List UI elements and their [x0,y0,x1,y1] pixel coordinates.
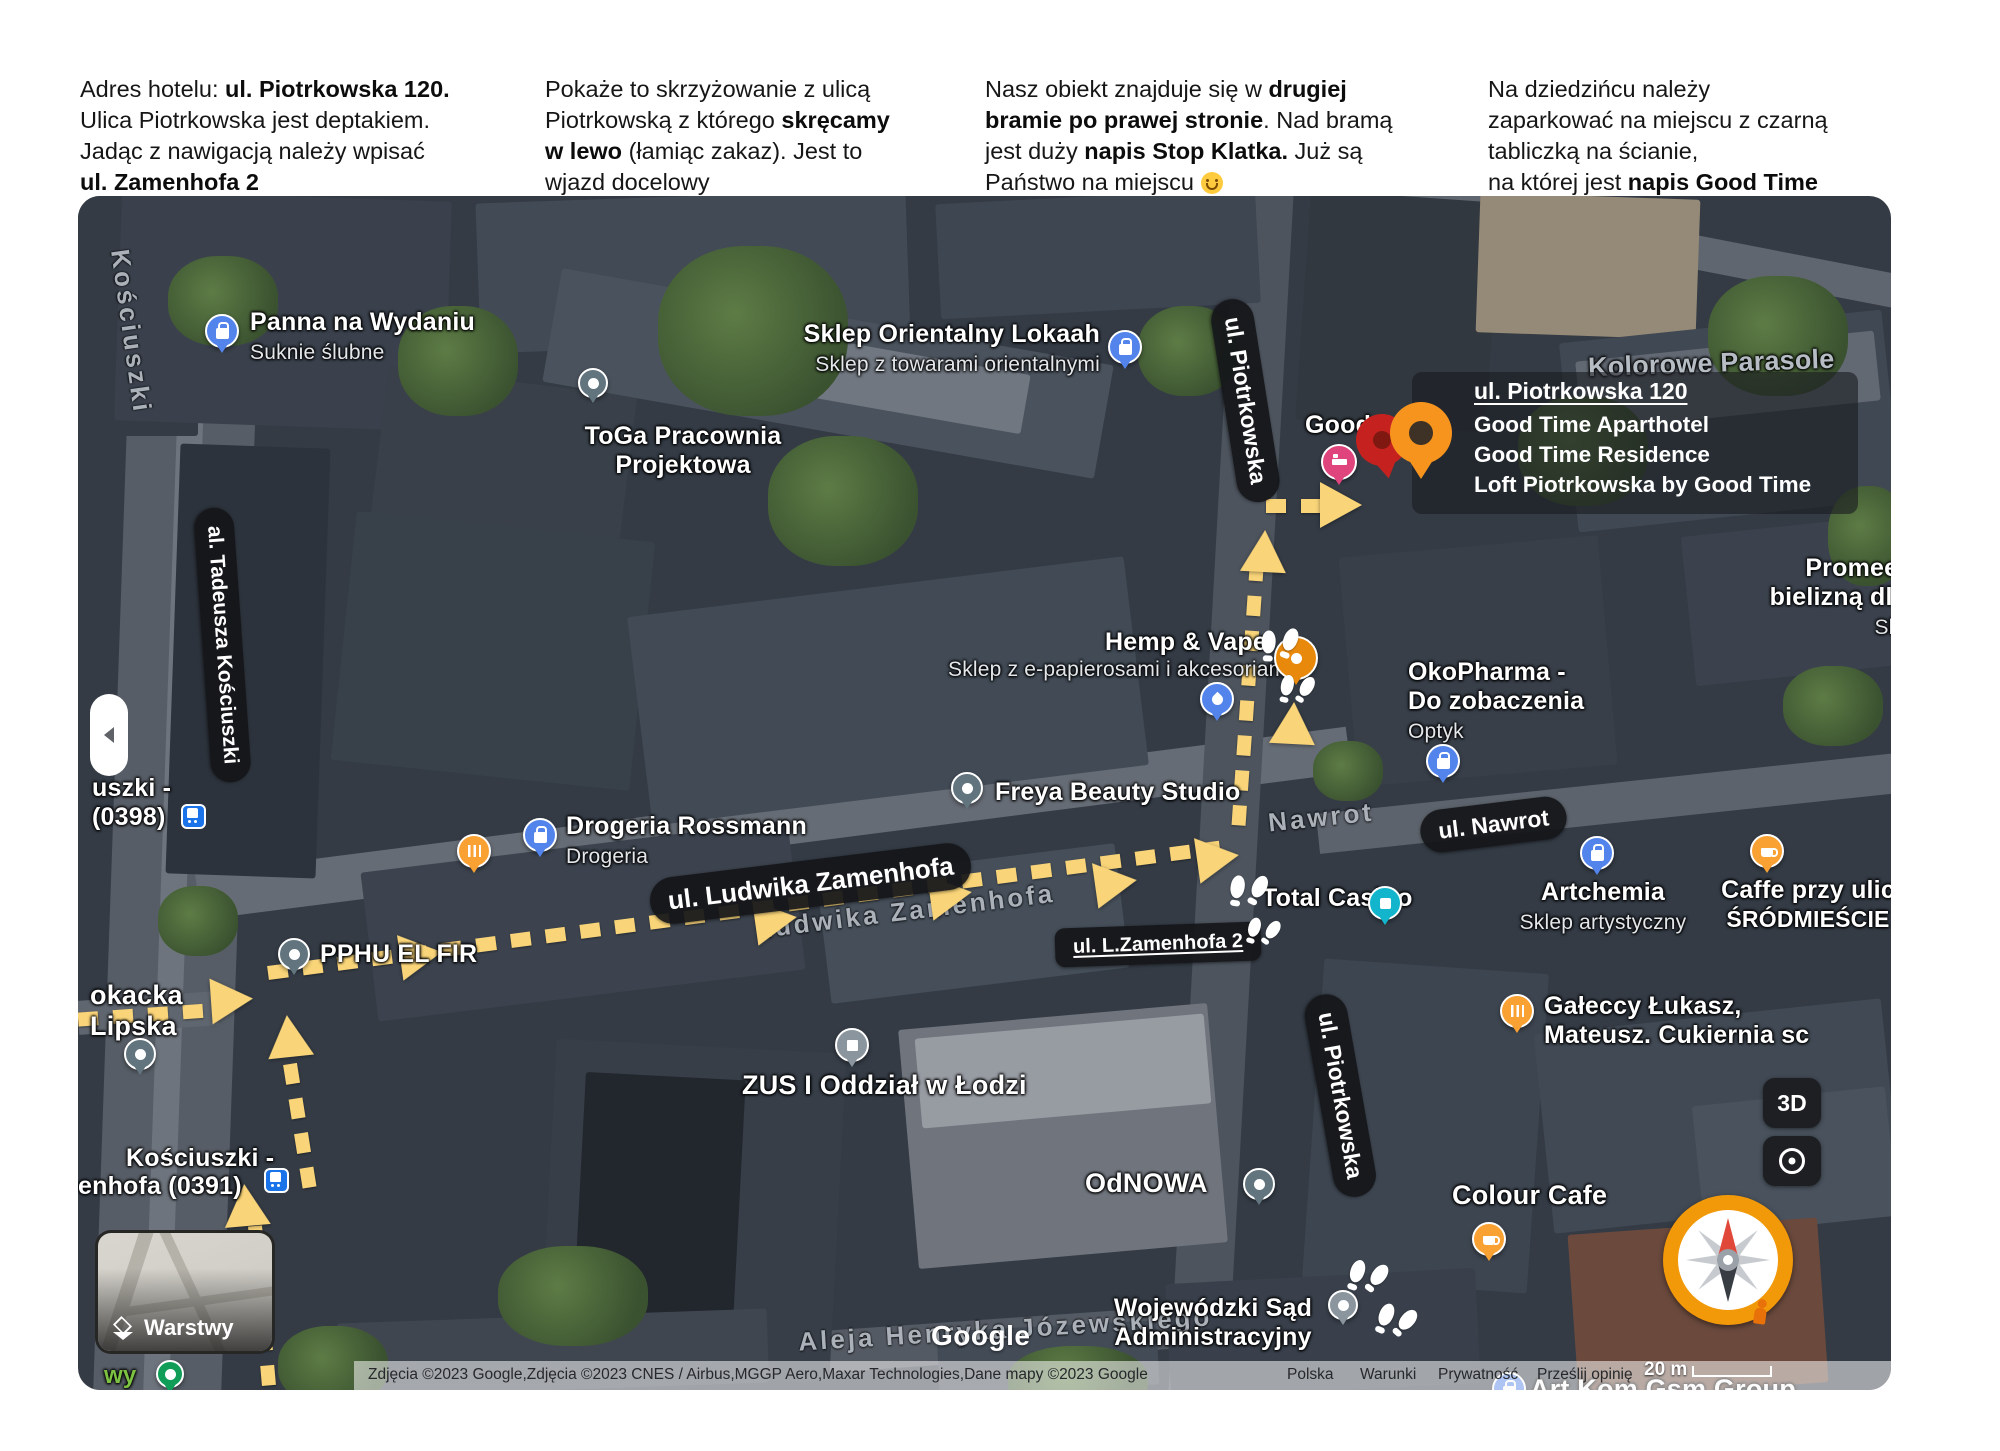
popup-line: Good Time Aparthotel [1474,410,1858,440]
poi-galeccy[interactable]: Gałeccy Łukasz,Mateusz. Cukiernia sc [1544,992,1809,1050]
institution-pin-zus[interactable] [835,1028,869,1062]
page: { "instructions": [ {"segments":[{"t":"A… [0,0,2000,1451]
bag-icon [534,832,547,843]
destination-pin-orange[interactable] [1390,402,1452,464]
dot-icon [135,1049,146,1060]
dot-icon [1254,1179,1265,1190]
fork-icon [468,845,481,857]
shopping-pin-orientalny[interactable] [1108,330,1142,364]
poi-okacka-lipska[interactable]: okackaLipska [90,980,183,1042]
place-pin-pphu[interactable] [278,938,310,970]
my-location-button[interactable] [1763,1136,1821,1186]
poi-promees[interactable]: Promees -bielizną dla kSklep [1708,554,1891,641]
tram-stop-icon [181,804,206,829]
park-pin[interactable] [156,1360,184,1388]
instruction-1: Adres hotelu: ul. Piotrkowska 120.Ulica … [80,74,525,198]
poi-toga[interactable]: ToGa PracowniaProjektowa [568,422,798,480]
fork-icon [1511,1005,1524,1017]
route-arrow-right [209,976,254,1025]
building-icon [847,1040,858,1051]
bed-icon [1332,459,1347,465]
street-pill-zamenhofa-2: ul. L.Zamenhofa 2 [1054,921,1261,967]
cafe-pin-colour[interactable] [1472,1222,1506,1256]
poi-freya[interactable]: Freya Beauty Studio [995,778,1241,807]
dice-icon [1380,898,1391,909]
scale-bar [1692,1366,1772,1377]
park-label-fragment: wy [104,1362,136,1390]
poi-zus[interactable]: ZUS I Oddział w Łodzi [742,1070,1022,1101]
route-dash [1266,499,1324,513]
dot-icon [289,949,300,960]
popup-title: ul. Piotrkowska 120 [1474,378,1858,405]
compass[interactable] [1663,1195,1793,1325]
coffee-cup-icon [1761,848,1773,857]
dot-icon [165,1369,176,1380]
instruction-3: Nasz obiekt znajduje się w drugiejbramie… [985,74,1465,198]
poi-sklep-orientalny[interactable]: Sklep Orientalny LokaahSklep z towarami … [700,320,1100,378]
vape-pin-hemp[interactable] [1200,682,1234,716]
poi-odnowa[interactable]: OdNOWA [1085,1168,1208,1199]
place-pin-okacka[interactable] [124,1038,156,1070]
popup-line: Loft Piotrkowska by Good Time [1474,470,1858,500]
route-arrow-right [1092,857,1140,908]
poi-pphu[interactable]: PPHU EL FIR [320,940,477,969]
restaurant-pin-route[interactable] [457,834,491,868]
shopping-pin-panna[interactable] [205,314,239,348]
dot-icon [588,378,599,389]
restaurant-pin-galeccy[interactable] [1500,994,1534,1028]
smiley-emoji [1201,172,1223,194]
layers-label: Warstwy [144,1315,234,1341]
poi-hemp-vape[interactable]: Hemp & Vape [1105,628,1267,657]
poi-caffe-srodmiescie[interactable]: Caffe przy ulicŚRÓDMIEŚCIE [1688,876,1891,934]
link-polska[interactable]: Polska [1287,1366,1334,1384]
dot-icon [962,783,973,794]
scale-label: 20 m [1644,1359,1687,1381]
3d-button[interactable]: 3D [1763,1078,1821,1128]
link-przeslij-opinie[interactable]: Prześlij opinię [1537,1366,1633,1384]
link-warunki[interactable]: Warunki [1360,1366,1416,1384]
cafe-pin-caffe[interactable] [1750,834,1784,868]
google-logo: Google [931,1320,1030,1352]
instruction-4: Na dziedzińcu należyzaparkować na miejsc… [1488,74,1903,198]
map-credits: Zdjęcia ©2023 Google,Zdjęcia ©2023 CNES … [368,1366,1148,1384]
route-arrow-up [1240,529,1288,573]
route-arrow-up [264,1013,314,1060]
bag-icon [216,328,229,339]
drop-icon [1209,691,1225,707]
transit-stop-0391-line2: enhofa (0391) [78,1172,242,1201]
link-prywatnosc[interactable]: Prywatność [1438,1366,1518,1384]
transit-stop-0398[interactable]: uszki -(0398) [92,774,171,832]
pegman-icon[interactable] [1753,1307,1767,1325]
shopping-pin-drogeria[interactable] [523,818,557,852]
tram-stop-icon [264,1168,289,1193]
layers-button[interactable]: Warstwy [95,1230,275,1354]
poi-panna[interactable]: Panna na WydaniuSuknie ślubne [250,308,475,366]
poi-colour-cafe[interactable]: Colour Cafe [1452,1180,1607,1211]
collapse-panel-button[interactable] [90,694,128,776]
bag-icon [1591,850,1604,861]
casino-pin[interactable] [1368,886,1402,920]
instruction-2: Pokaże to skrzyżowanie z ulicąPiotrkowsk… [545,74,975,198]
layers-icon [112,1318,134,1338]
place-pin-freya[interactable] [951,772,983,804]
poi-okopharma[interactable]: OkoPharma -Do zobaczeniaOptyk [1408,658,1584,745]
poi-wojewodzki-sad[interactable]: Wojewódzki SądAdministracyjny [1098,1294,1328,1352]
transit-stop-0391-line1[interactable]: Kościuszki - [126,1144,274,1173]
place-pin-toga[interactable] [578,368,608,398]
satellite-map[interactable]: Ludwika Zamenhofa Nawrot Aleja Henryka J… [78,196,1891,1390]
shopping-pin-artchemia[interactable] [1580,836,1614,870]
target-icon [1779,1148,1805,1174]
bag-icon [1437,758,1450,769]
popup-line: Good Time Residence [1474,440,1858,470]
coffee-cup-icon [1483,1236,1495,1245]
destination-popup: ul. Piotrkowska 120 Good Time Aparthotel… [1412,372,1858,514]
poi-drogeria[interactable]: Drogeria RossmannDrogeria [566,812,807,870]
shopping-pin-okopharma[interactable] [1426,744,1460,778]
poi-hemp-vape-sub: Sklep z e-papierosami i akcesoriami [948,658,1291,682]
bag-icon [1119,344,1132,355]
hotel-pin-pink[interactable] [1321,444,1357,480]
place-pin-odnowa[interactable] [1243,1168,1275,1200]
